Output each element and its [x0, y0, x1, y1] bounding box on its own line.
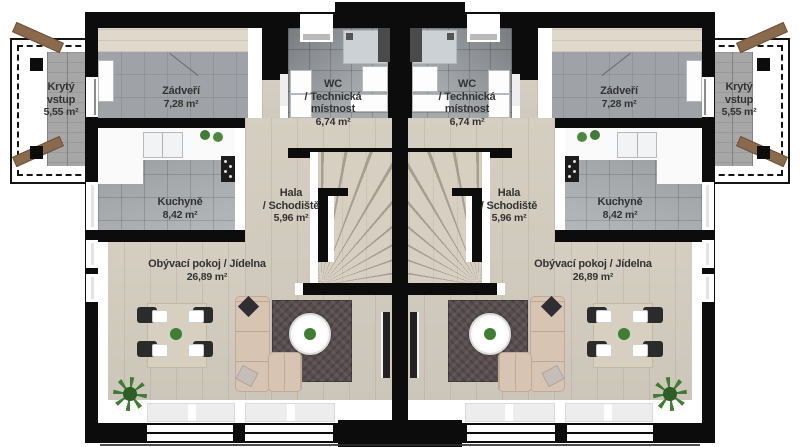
- coffee-table: [289, 313, 331, 355]
- place-setting: [188, 344, 204, 357]
- burner: [568, 165, 571, 168]
- room-area: 6,74 m²: [407, 116, 527, 129]
- room-name: Obývací pokoj / Jídelna: [117, 258, 297, 271]
- place-setting: [596, 344, 612, 357]
- sill-pane: [147, 403, 235, 422]
- door-leaf: [704, 79, 706, 115]
- living-window: [702, 240, 714, 268]
- kitchen-living-wall: [555, 230, 692, 242]
- understair-cap: [295, 283, 303, 295]
- burner: [568, 175, 571, 178]
- porch-post-top: [30, 58, 43, 71]
- understair-wall: [408, 283, 497, 295]
- room-area: 26,89 m²: [503, 271, 683, 284]
- window-glass: [706, 243, 709, 265]
- window-sill: [470, 34, 497, 40]
- south-window-line: [245, 434, 333, 441]
- kitchen-label: Kuchyně 8,42 m²: [120, 196, 240, 221]
- living-label: Obývací pokoj / Jídelna 26,89 m²: [503, 258, 683, 283]
- room-name-line: / Technická: [273, 91, 393, 104]
- sill-pane: [465, 403, 555, 422]
- partition-wall: [538, 28, 552, 118]
- window-glass: [706, 185, 709, 227]
- burner: [573, 170, 576, 173]
- sill-pane: [245, 403, 335, 422]
- partition-wall: [248, 28, 262, 118]
- room-area: 8,42 m²: [120, 209, 240, 222]
- vestibule-label: Zádveří 7,28 m²: [559, 85, 679, 110]
- room-name-line: vstup: [11, 94, 111, 107]
- place-setting: [632, 310, 648, 323]
- wc-label: WC / Technická místnost 6,74 m²: [407, 78, 527, 129]
- pane-mullion: [505, 404, 513, 421]
- sofa-chaise: [268, 352, 302, 392]
- place-setting: [632, 344, 648, 357]
- kitchen-label: Kuchyně 8,42 m²: [560, 196, 680, 221]
- unit-left: Zádveří 7,28 m² WC / Technická místnost …: [85, 0, 400, 447]
- counter-plant: [213, 132, 223, 142]
- centerpiece-plant: [618, 328, 630, 340]
- sink-divider: [637, 133, 638, 157]
- window-glass: [706, 277, 709, 299]
- tv: [410, 312, 419, 378]
- wc-window: [467, 14, 500, 42]
- south-window-line: [567, 434, 653, 441]
- floor-plan: Krytý vstup 5,55 m² Krytý vstup 5,55 m²: [0, 0, 800, 447]
- room-area: 7,28 m²: [121, 98, 241, 111]
- shower-head: [346, 33, 353, 40]
- covered-entrance-label: Krytý vstup 5,55 m²: [11, 81, 111, 119]
- burner: [229, 165, 232, 168]
- sink-divider: [162, 133, 163, 157]
- living-wall-face: [692, 242, 702, 400]
- counter-plant: [590, 130, 600, 140]
- room-name-line: / Schodiště: [449, 200, 569, 213]
- place-setting: [152, 310, 168, 323]
- window-glass: [91, 243, 94, 265]
- living-window: [702, 274, 714, 302]
- pane-mullion: [287, 404, 295, 421]
- place-setting: [188, 310, 204, 323]
- burner: [573, 160, 576, 163]
- kitchen-sink: [617, 132, 657, 158]
- cooktop: [565, 156, 579, 182]
- room-name: Kuchyně: [120, 196, 240, 209]
- south-window-line: [147, 425, 233, 432]
- shower-head: [447, 33, 454, 40]
- porch-post-bottom: [30, 146, 43, 159]
- vestibule-bench: [98, 28, 248, 52]
- centerpiece-plant: [170, 328, 182, 340]
- kitchen-window: [702, 182, 714, 230]
- burner: [224, 170, 227, 173]
- unit-right: Zádveří 7,28 m² WC / Technická místnost …: [400, 0, 715, 447]
- burner: [224, 160, 227, 163]
- room-area: 8,42 m²: [560, 209, 680, 222]
- kitchen-counter-left: [657, 128, 702, 184]
- room-name-line: Hala: [231, 187, 351, 200]
- room-name-line: Krytý: [11, 81, 111, 94]
- room-name-line: WC: [407, 78, 527, 91]
- utility-shaft: [378, 22, 390, 62]
- vestibule-label: Zádveří 7,28 m²: [121, 85, 241, 110]
- room-name-line: místnost: [407, 103, 527, 116]
- south-window-line: [467, 425, 555, 432]
- hall-label: Hala / Schodiště 5,96 m²: [231, 187, 351, 225]
- living-label: Obývací pokoj / Jídelna 26,89 m²: [117, 258, 297, 283]
- table-plant: [484, 328, 496, 340]
- room-name-line: místnost: [273, 103, 393, 116]
- window-sill: [303, 34, 330, 40]
- porch-post-top: [757, 58, 770, 71]
- kitchen-sink: [143, 132, 183, 158]
- wc-wall: [512, 28, 520, 74]
- room-name-line: / Schodiště: [231, 200, 351, 213]
- south-window-line: [147, 434, 233, 441]
- living-window: [86, 274, 98, 302]
- room-area: 6,74 m²: [273, 116, 393, 129]
- counter-plant: [577, 132, 587, 142]
- vestibule-bench: [552, 28, 702, 52]
- wc-window: [300, 14, 333, 42]
- coffee-table: [469, 313, 511, 355]
- kitchen-living-wall: [108, 230, 245, 242]
- corner-plant: [113, 377, 147, 411]
- sofa-chaise: [498, 352, 532, 392]
- living-wall-face: [98, 242, 108, 400]
- living-window: [86, 240, 98, 268]
- room-name: Zádveří: [559, 85, 679, 98]
- counter-plant: [200, 130, 210, 140]
- kitchen-counter-left: [98, 128, 143, 184]
- room-area: 26,89 m²: [117, 271, 297, 284]
- porch-post-bottom: [757, 146, 770, 159]
- pane-mullion: [188, 404, 196, 421]
- room-name-line: / Technická: [407, 91, 527, 104]
- room-name: Zádveří: [121, 85, 241, 98]
- foundation-line: [100, 444, 700, 446]
- pane-mullion: [604, 404, 612, 421]
- south-window-line: [245, 425, 333, 432]
- room-name-line: Hala: [449, 187, 569, 200]
- south-window-line: [567, 425, 653, 432]
- kitchen-window: [86, 182, 98, 230]
- tv: [381, 312, 390, 378]
- burner: [229, 175, 232, 178]
- understair-cap: [497, 283, 505, 295]
- party-wall-foundation: [338, 420, 462, 447]
- vestibule-cabinet: [686, 60, 702, 102]
- room-area: 5,96 m²: [449, 212, 569, 225]
- room-name: Kuchyně: [560, 196, 680, 209]
- room-name-line: WC: [273, 78, 393, 91]
- front-door: [702, 77, 714, 117]
- south-window-line: [467, 434, 555, 441]
- place-setting: [596, 310, 612, 323]
- room-area: 5,96 m²: [231, 212, 351, 225]
- door-swing-line: [169, 53, 198, 76]
- window-glass: [91, 185, 94, 227]
- window-glass: [91, 277, 94, 299]
- table-plant: [304, 328, 316, 340]
- party-wall-top: [335, 2, 465, 28]
- wc-wall: [280, 28, 288, 74]
- corner-plant: [653, 377, 687, 411]
- utility-shaft: [410, 22, 422, 62]
- porch-right: Krytý vstup 5,55 m²: [702, 36, 792, 184]
- place-setting: [152, 344, 168, 357]
- hall-label: Hala / Schodiště 5,96 m²: [449, 187, 569, 225]
- sill-pane: [565, 403, 653, 422]
- room-name: Obývací pokoj / Jídelna: [503, 258, 683, 271]
- wc-label: WC / Technická místnost 6,74 m²: [273, 78, 393, 129]
- door-swing-line: [602, 53, 631, 76]
- room-area: 5,55 m²: [11, 106, 111, 119]
- room-area: 7,28 m²: [559, 98, 679, 111]
- cooktop: [221, 156, 235, 182]
- understair-wall: [303, 283, 392, 295]
